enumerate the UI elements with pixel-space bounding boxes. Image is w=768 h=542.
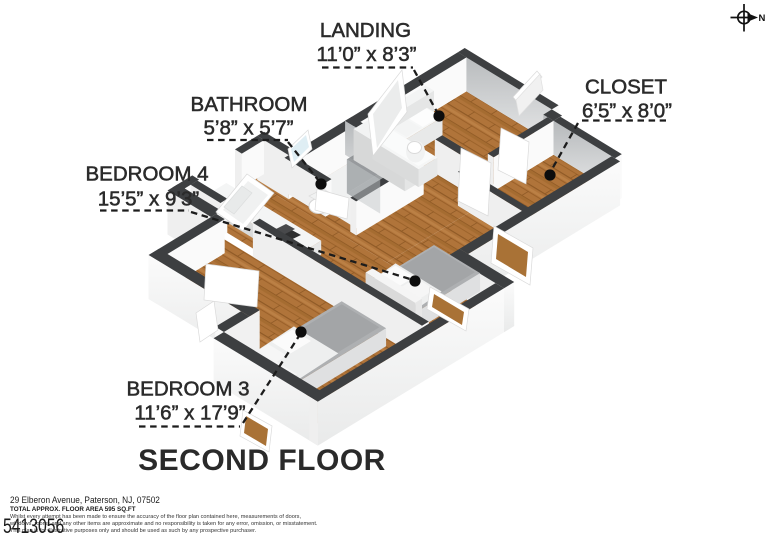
svg-text:15’5” x 9’3”: 15’5” x 9’3” [98,188,200,211]
svg-text:5’8” x 5’7”: 5’8” x 5’7” [203,117,293,140]
svg-text:BEDROOM 4: BEDROOM 4 [85,163,208,186]
svg-text:CLOSET: CLOSET [585,76,667,99]
svg-text:11’6” x 17’9”: 11’6” x 17’9” [134,402,245,425]
svg-text:BEDROOM 3: BEDROOM 3 [126,378,249,401]
svg-text:11’0” x 8’3”: 11’0” x 8’3” [317,43,417,66]
svg-text:N: N [759,13,766,24]
svg-text:BATHROOM: BATHROOM [191,93,308,116]
svg-text:6’5” x 8’0”: 6’5” x 8’0” [582,100,672,123]
svg-text:LANDING: LANDING [320,19,411,42]
